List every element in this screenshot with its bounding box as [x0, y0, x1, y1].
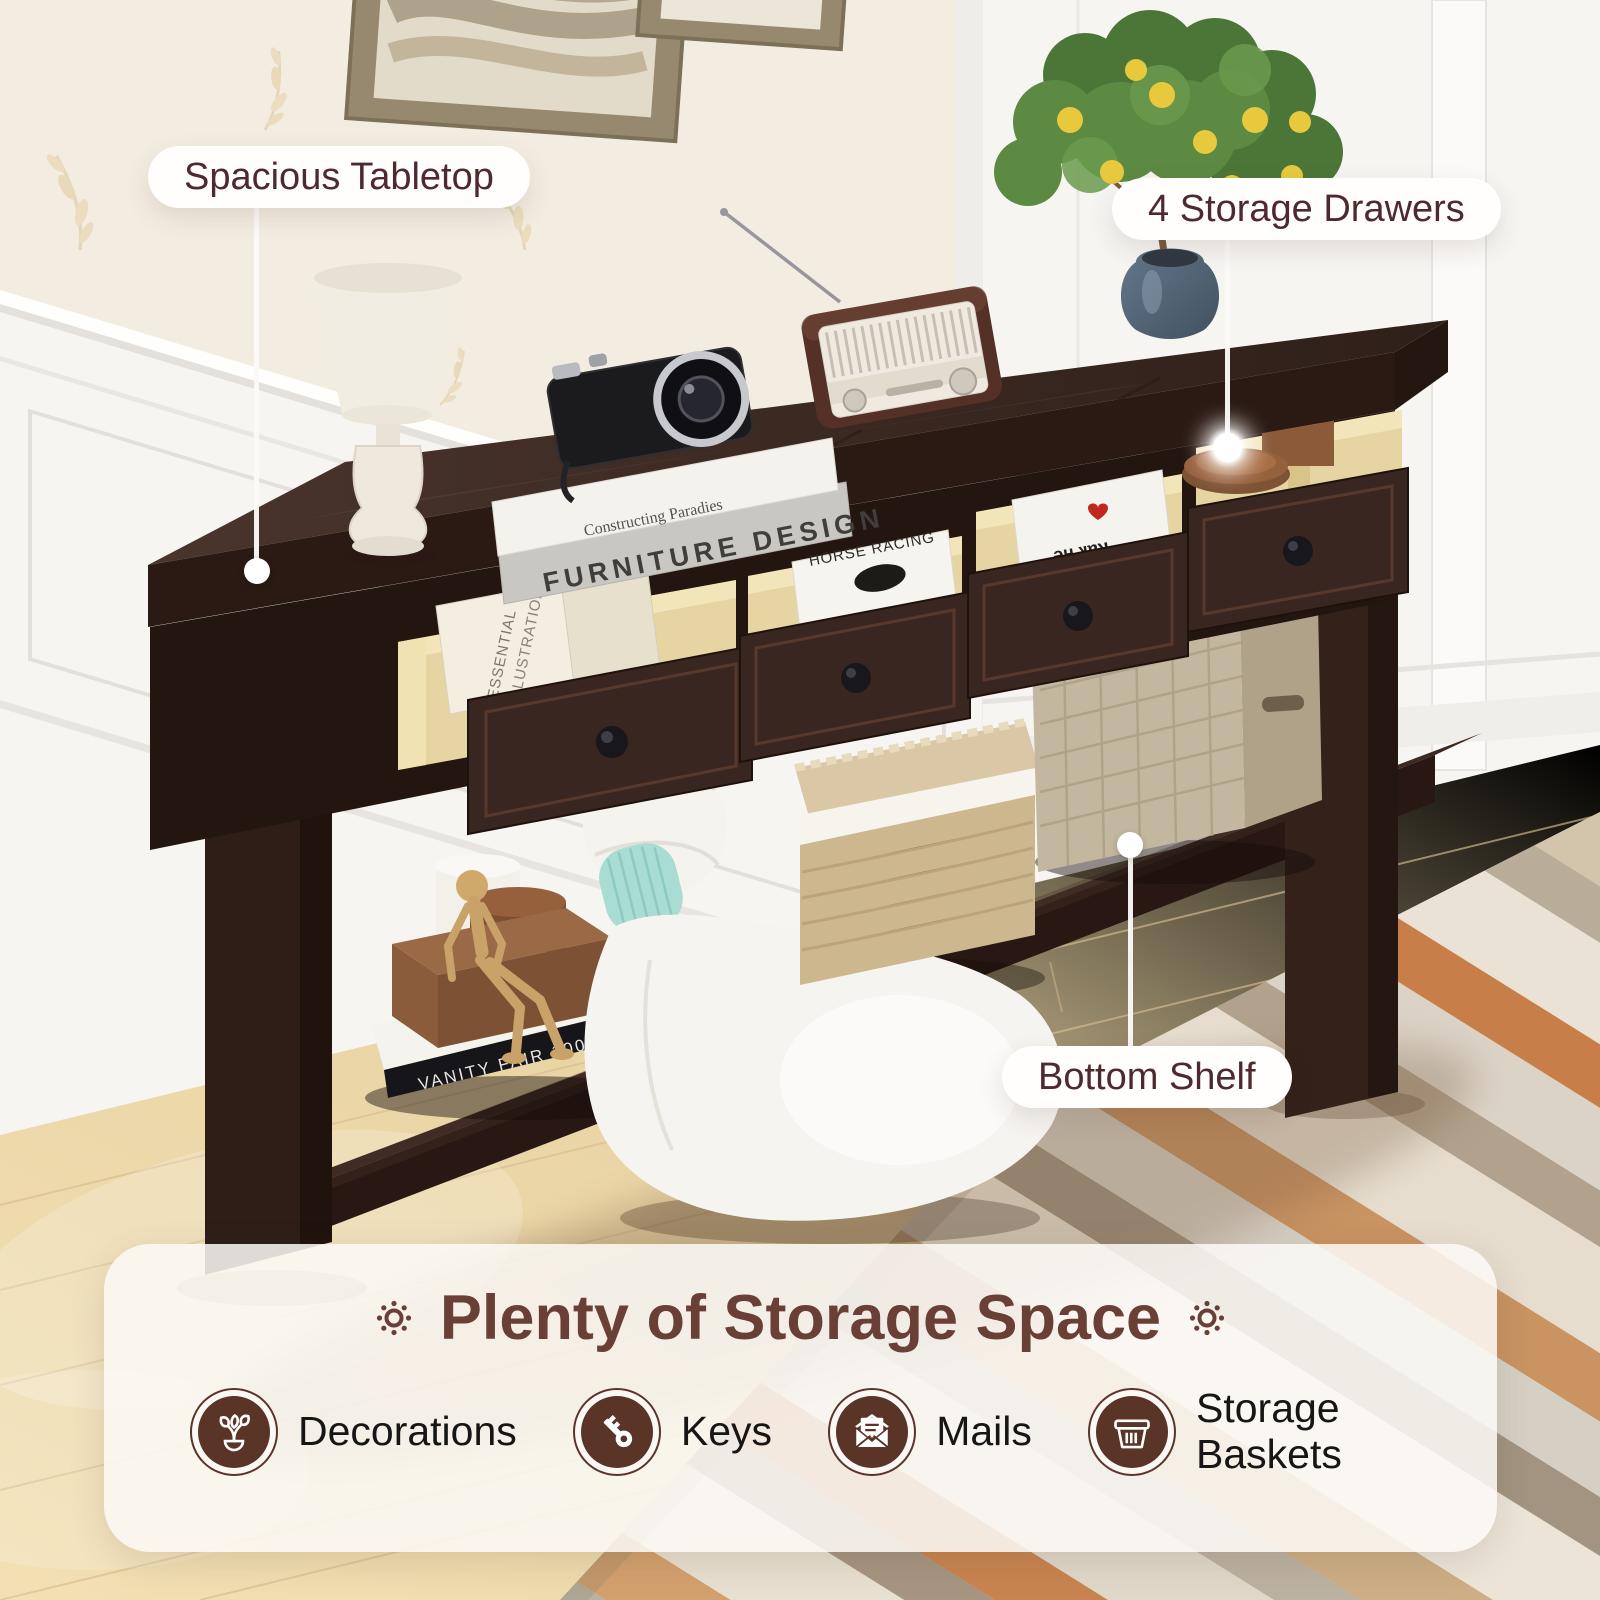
feature-list: Decorations Keys — [104, 1386, 1497, 1478]
mail-icon — [848, 1408, 896, 1456]
feature-storage-baskets: Storage Baskets — [1088, 1386, 1411, 1478]
product-infographic: VANITY FAIR 100 YEARS — [0, 0, 1600, 1600]
plant-icon — [210, 1408, 258, 1456]
key-icon — [593, 1408, 641, 1456]
shelf-callout-dot — [1117, 832, 1143, 858]
shelf-callout-line — [1128, 845, 1133, 1047]
drawers-callout-line — [1225, 240, 1230, 436]
panel-heading-row: Plenty of Storage Space — [104, 1282, 1497, 1354]
basket-icon — [1108, 1408, 1156, 1456]
panel-heading: Plenty of Storage Space — [440, 1282, 1161, 1354]
callout-storage-drawers: 4 Storage Drawers — [1112, 178, 1501, 240]
feature-label: Keys — [681, 1409, 772, 1455]
sun-ornament-icon — [374, 1298, 414, 1338]
callout-bottom-shelf: Bottom Shelf — [1002, 1046, 1292, 1108]
drawers-callout-dot — [1213, 433, 1242, 462]
feature-label: Decorations — [298, 1409, 517, 1455]
feature-label: Storage Baskets — [1196, 1386, 1411, 1478]
feature-label: Mails — [936, 1409, 1032, 1455]
tabletop-callout-dot — [244, 558, 270, 584]
feature-decorations: Decorations — [190, 1388, 517, 1476]
tabletop-callout-line — [254, 208, 259, 560]
callout-spacious-tabletop: Spacious Tabletop — [148, 146, 530, 208]
sun-ornament-icon — [1187, 1298, 1227, 1338]
feature-mails: Mails — [828, 1388, 1032, 1476]
storage-info-panel: Plenty of Storage Space — [104, 1244, 1497, 1552]
feature-keys: Keys — [573, 1388, 772, 1476]
